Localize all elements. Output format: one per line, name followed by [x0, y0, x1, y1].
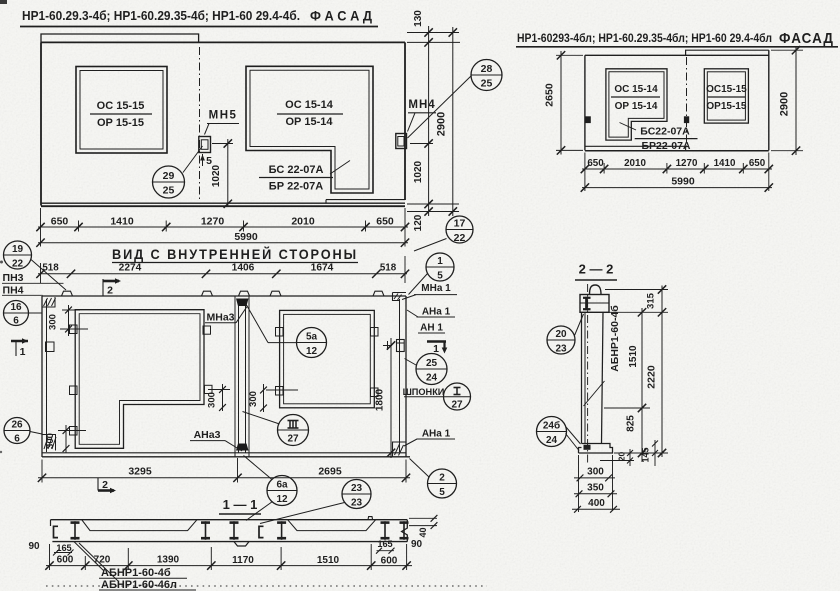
svg-text:2: 2	[439, 473, 445, 484]
svg-text:1510: 1510	[317, 555, 340, 566]
svg-text:5: 5	[437, 271, 443, 282]
svg-text:ОС 15-14: ОС 15-14	[285, 99, 334, 111]
svg-text:1 — 1: 1 — 1	[223, 497, 258, 512]
svg-text:6а: 6а	[276, 480, 288, 491]
svg-text:165: 165	[56, 543, 71, 553]
svg-text:315: 315	[646, 292, 657, 309]
svg-text:145: 145	[641, 447, 651, 462]
svg-text:1020: 1020	[413, 160, 424, 183]
svg-text:ПН4: ПН4	[3, 285, 24, 297]
svg-text:БР 22-07А: БР 22-07А	[269, 181, 323, 193]
svg-text:6: 6	[13, 316, 19, 327]
svg-text:2010: 2010	[291, 216, 315, 228]
svg-text:АНа 1: АНа 1	[422, 307, 451, 318]
svg-text:ОР 15-14: ОР 15-14	[285, 116, 333, 128]
svg-text:25: 25	[426, 358, 438, 369]
svg-text:АБНР1-60-4б: АБНР1-60-4б	[101, 567, 171, 579]
svg-text:ОС15-15: ОС15-15	[706, 84, 747, 95]
svg-text:28: 28	[481, 63, 493, 75]
svg-text:БР22-07А: БР22-07А	[642, 140, 691, 152]
svg-text:ОР15-15: ОР15-15	[706, 101, 746, 112]
svg-text:АБНР1-60-46л: АБНР1-60-46л	[101, 579, 177, 591]
svg-text:90: 90	[411, 539, 423, 550]
svg-text:БС 22-07А: БС 22-07А	[269, 164, 324, 176]
svg-text:5990: 5990	[671, 176, 695, 188]
svg-text:1406: 1406	[232, 263, 255, 274]
svg-text:24б: 24б	[543, 420, 560, 432]
svg-text:1800: 1800	[375, 388, 386, 411]
svg-text:400: 400	[588, 498, 605, 509]
svg-text:2695: 2695	[318, 466, 342, 478]
svg-text:1410: 1410	[110, 216, 134, 228]
svg-text:300: 300	[587, 467, 604, 478]
svg-text:5: 5	[439, 487, 445, 498]
svg-text:НР1-60293-4бл; НР1-60.29.35-4б: НР1-60293-4бл; НР1-60.29.35-4бл; НР1-60 …	[517, 31, 772, 45]
svg-text:26: 26	[11, 420, 23, 431]
svg-text:ОР 15-15: ОР 15-15	[97, 117, 144, 129]
svg-text:600: 600	[381, 556, 398, 567]
svg-text:ВИД С ВНУТРЕННЕЙ СТОРОНЫ: ВИД С ВНУТРЕННЕЙ СТОРОНЫ	[112, 247, 358, 262]
svg-text:600: 600	[57, 555, 74, 566]
svg-text:1270: 1270	[676, 158, 698, 169]
svg-text:300: 300	[45, 433, 56, 449]
svg-text:АБНР1-60-4б: АБНР1-60-4б	[609, 305, 621, 372]
svg-text:23: 23	[351, 483, 363, 494]
svg-text:6: 6	[14, 434, 20, 445]
svg-text:ОС 15-15: ОС 15-15	[97, 100, 145, 112]
svg-text:25: 25	[163, 185, 175, 197]
svg-text:2900: 2900	[779, 92, 791, 116]
svg-text:24: 24	[546, 435, 558, 446]
svg-text:12: 12	[276, 494, 288, 505]
svg-text:518: 518	[380, 263, 397, 274]
svg-text:2220: 2220	[646, 365, 658, 389]
svg-text:350: 350	[587, 483, 604, 494]
svg-text:29: 29	[163, 170, 175, 182]
svg-text:300: 300	[207, 392, 218, 408]
svg-text:НР1-60.29.3-4б; НР1-60.29.35-4: НР1-60.29.3-4б; НР1-60.29.35-4б; НР1-60 …	[22, 9, 300, 23]
svg-text:90: 90	[28, 541, 40, 552]
svg-text:650: 650	[749, 158, 766, 169]
svg-text:2: 2	[107, 285, 113, 297]
svg-text:5а: 5а	[306, 332, 318, 343]
svg-text:2 — 2: 2 — 2	[579, 262, 614, 277]
svg-text:165: 165	[377, 539, 392, 549]
svg-text:650: 650	[587, 158, 604, 169]
svg-text:650: 650	[376, 216, 394, 228]
svg-text:МНа3: МНа3	[206, 312, 234, 324]
svg-text:ОС 15-14: ОС 15-14	[614, 84, 658, 95]
svg-text:1410: 1410	[714, 158, 736, 169]
svg-text:300: 300	[48, 314, 59, 330]
svg-text:2274: 2274	[119, 263, 142, 274]
svg-text:ПН3: ПН3	[3, 272, 24, 284]
svg-text:2650: 2650	[544, 83, 556, 107]
svg-text:1510: 1510	[628, 345, 639, 368]
svg-text:3295: 3295	[128, 466, 152, 478]
svg-text:АН 1: АН 1	[420, 323, 443, 334]
svg-text:ФАСАД: ФАСАД	[779, 30, 834, 47]
svg-text:40: 40	[418, 527, 428, 537]
svg-text:1: 1	[437, 256, 443, 267]
svg-text:БС22-07А: БС22-07А	[640, 126, 690, 138]
svg-text:16: 16	[10, 302, 22, 313]
svg-text:17: 17	[454, 218, 466, 230]
svg-text:25: 25	[481, 78, 493, 90]
svg-text:ОР 15-14: ОР 15-14	[615, 101, 658, 112]
svg-text:2010: 2010	[624, 158, 646, 169]
svg-text:1390: 1390	[157, 555, 180, 566]
svg-text:27: 27	[287, 434, 299, 445]
svg-text:23: 23	[351, 498, 363, 509]
svg-text:120: 120	[413, 214, 424, 231]
svg-text:2900: 2900	[436, 112, 448, 136]
svg-text:1170: 1170	[232, 555, 254, 566]
svg-text:МНа 1: МНа 1	[421, 283, 451, 294]
svg-text:20: 20	[617, 452, 627, 462]
svg-text:19: 19	[12, 244, 24, 255]
svg-text:МН4: МН4	[408, 99, 435, 111]
svg-text:130: 130	[413, 10, 424, 27]
svg-text:24: 24	[426, 373, 438, 384]
svg-text:12: 12	[306, 346, 318, 357]
svg-text:650: 650	[51, 216, 69, 228]
svg-text:ШПОНКИ: ШПОНКИ	[403, 387, 445, 397]
svg-text:1674: 1674	[311, 263, 334, 274]
svg-text:300: 300	[248, 391, 259, 407]
svg-text:МН5: МН5	[209, 110, 238, 122]
svg-text:1270: 1270	[201, 216, 225, 228]
svg-text:23: 23	[555, 344, 567, 355]
svg-text:1020: 1020	[211, 164, 222, 187]
svg-text:20: 20	[555, 329, 567, 340]
svg-text:АНа3: АНа3	[194, 429, 221, 441]
svg-text:Ф А С А Д: Ф А С А Д	[310, 9, 372, 24]
svg-text:1: 1	[20, 346, 26, 358]
svg-text:27: 27	[451, 400, 463, 411]
svg-text:22: 22	[454, 232, 466, 244]
svg-text:5990: 5990	[234, 231, 258, 243]
svg-text:2: 2	[102, 479, 108, 491]
svg-text:22: 22	[12, 259, 24, 270]
svg-text:АНа 1: АНа 1	[422, 429, 451, 440]
svg-text:825: 825	[626, 415, 637, 432]
